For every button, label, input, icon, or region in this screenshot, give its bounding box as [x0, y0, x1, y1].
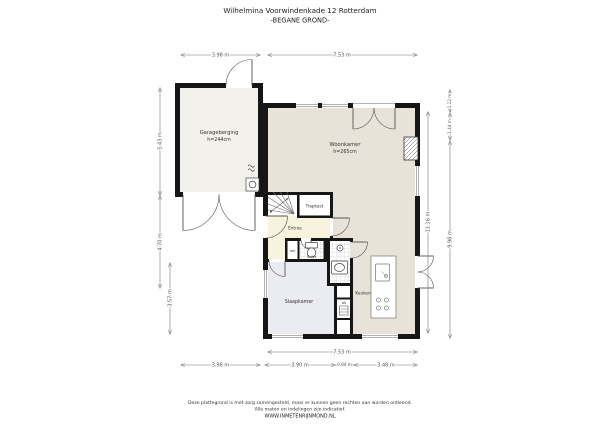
dim-right-seg3: 9.98 m [448, 230, 454, 248]
dim-left-garage: 5.43 m [158, 132, 164, 150]
kitchen-island [371, 256, 396, 318]
dim-bottom-seg3: 3.48 m [377, 363, 395, 369]
dim-left-bedroom: 3.57 m [168, 289, 174, 307]
living-window-top-2 [322, 103, 348, 108]
label-mk: mk [290, 249, 297, 253]
dim-bottom-seg2: 0.84 m [337, 362, 352, 367]
living-window-top-1 [296, 103, 318, 108]
room-entree-floor2 [268, 238, 285, 259]
label-entree: Entree [288, 226, 302, 231]
dim-top-garage: 3.98 m [212, 53, 230, 59]
dim-bottom-garage: 3.98 m [212, 363, 230, 369]
label-kitchen: Keuken [355, 291, 371, 296]
label-bedroom: Slaapkamer [285, 299, 314, 305]
chimney-block [404, 137, 418, 160]
footer-disclaimer-2: Alle maten en indelingen zijn indicatief… [255, 407, 346, 413]
garage-double-doors [183, 192, 255, 231]
bedroom-window-bottom [272, 334, 303, 339]
kitchen-window-bottom [362, 334, 398, 339]
footer-website: WWW.INMETENRIJNMOND.NL [264, 414, 335, 420]
washbasin-icon [332, 261, 348, 274]
page-subtitle: -BEGANE GROND- [271, 17, 331, 25]
shower-head-icon [337, 245, 343, 251]
dim-right-seg1: 1.12 m [447, 94, 452, 109]
garden-doors-right [415, 256, 434, 288]
label-garage-height: h=244cm [207, 137, 231, 143]
dim-right-seg2: 1.44 m [447, 119, 452, 134]
dim-bottom-seg1: 3.90 m [291, 363, 309, 369]
bedroom-window-left [263, 270, 268, 298]
living-window-right [415, 166, 420, 196]
cupboard-appliance-icon [340, 306, 349, 315]
garage-front-door [226, 60, 252, 89]
label-garage: Garageberging [200, 130, 239, 136]
dim-bottom-overall: 7.53 m [333, 350, 351, 356]
label-trapkast: Trapkast [305, 204, 324, 209]
dim-right-overall: 11.16 m [426, 211, 432, 232]
footer-disclaimer-1: Deze plattegrond is met zorg samengestel… [188, 400, 412, 406]
floor-plan: Wilhelmina Voorwindenkade 12 Rotterdam -… [0, 0, 600, 424]
label-living: Woonkamer [330, 142, 362, 148]
dim-top-living: 7.53 m [333, 53, 351, 59]
label-toilet: Toilet [306, 255, 317, 259]
label-living-height: h=265cm [333, 149, 357, 155]
room-bedroom-floor [268, 262, 334, 334]
dim-left-mid: 4.70 m [158, 233, 164, 251]
page-title: Wilhelmina Voorwindenkade 12 Rotterdam [223, 6, 376, 15]
